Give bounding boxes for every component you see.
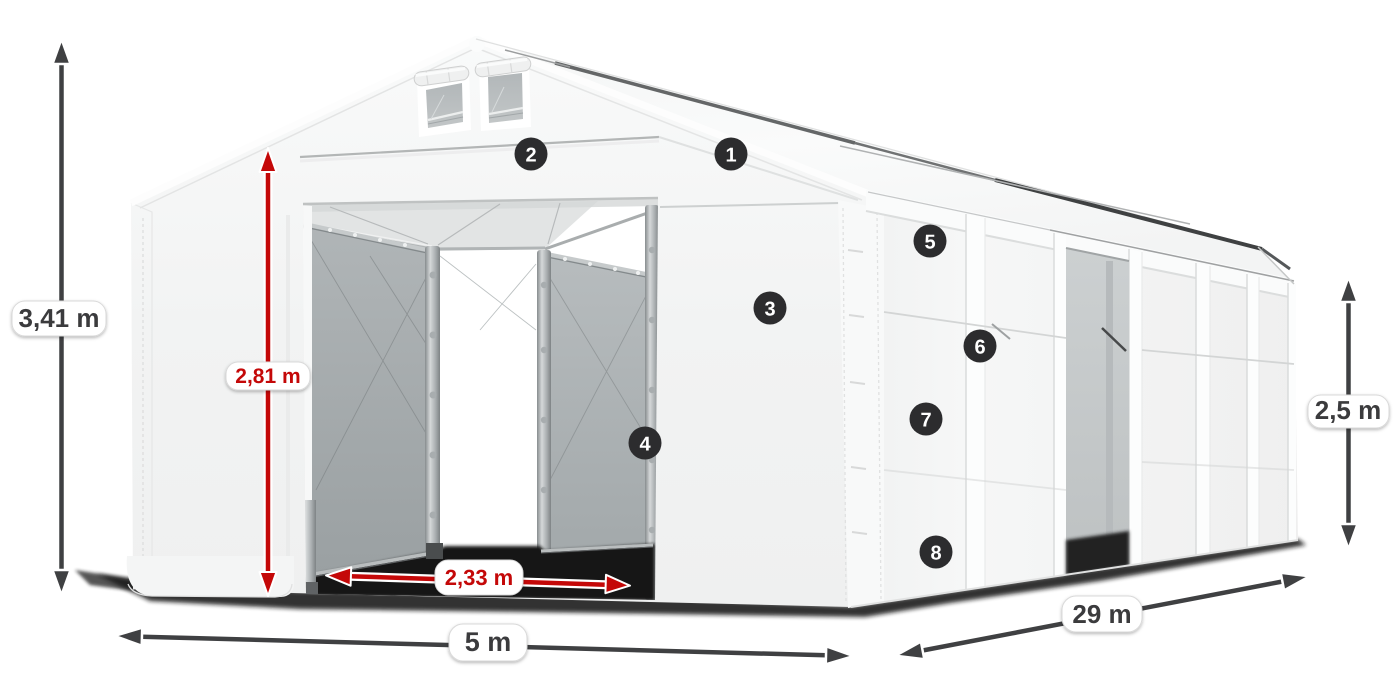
svg-text:3,41 m: 3,41 m xyxy=(19,303,100,333)
svg-text:8: 8 xyxy=(930,543,941,565)
svg-text:2,5 m: 2,5 m xyxy=(1315,395,1382,425)
svg-text:6: 6 xyxy=(974,337,985,359)
svg-text:2,81 m: 2,81 m xyxy=(235,365,300,388)
svg-text:29 m: 29 m xyxy=(1072,599,1131,629)
svg-text:3: 3 xyxy=(764,299,775,321)
svg-text:5: 5 xyxy=(924,232,935,254)
svg-text:4: 4 xyxy=(639,434,651,456)
svg-text:2: 2 xyxy=(525,145,536,167)
svg-text:5 m: 5 m xyxy=(465,627,512,657)
svg-text:7: 7 xyxy=(920,410,931,432)
svg-text:2,33 m: 2,33 m xyxy=(445,565,514,590)
svg-text:1: 1 xyxy=(725,145,736,167)
